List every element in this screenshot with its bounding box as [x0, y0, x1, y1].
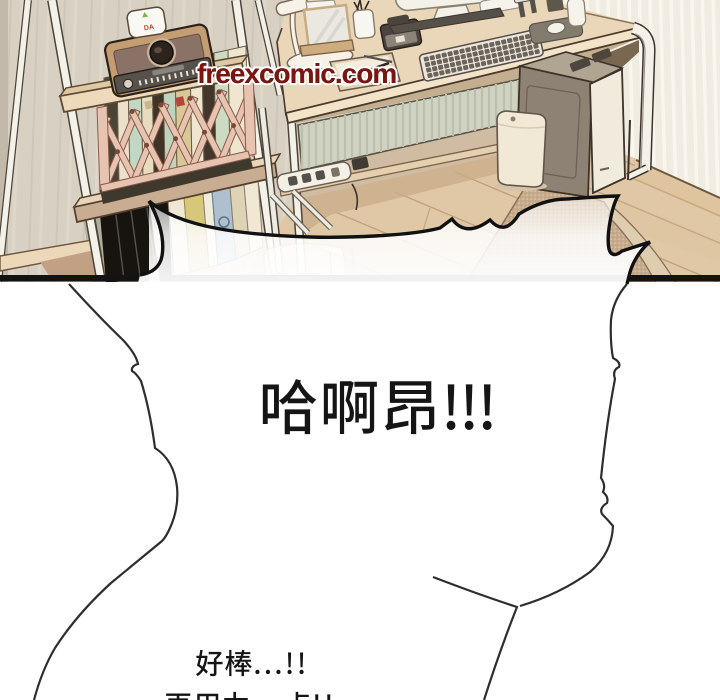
svg-text:freexcomic.com: freexcomic.com [197, 58, 396, 89]
